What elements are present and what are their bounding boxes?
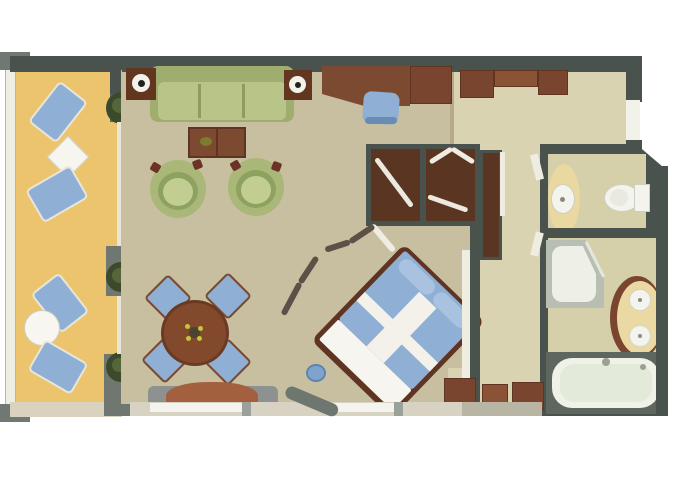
- hallway-cabinet-right: [538, 70, 568, 95]
- bottom-wall-right: [462, 402, 542, 416]
- wardrobe-door: [500, 152, 505, 216]
- ottoman-pouf: [306, 364, 326, 382]
- veranda-railing: [5, 62, 16, 416]
- tub-chair-1-cushion: [163, 178, 193, 206]
- sofa-cushion-divider-1: [198, 84, 201, 118]
- coffee-table-split: [216, 129, 218, 156]
- sofa-cushion-divider-2: [242, 84, 245, 118]
- bedroom-east-wall: [470, 222, 480, 404]
- tub-chair-2-cushion: [241, 176, 271, 204]
- desk-chair-back: [365, 117, 397, 124]
- window-pane-1: [150, 403, 242, 412]
- veranda-round-table: [24, 310, 60, 346]
- bathroom-east-wall: [656, 166, 668, 416]
- wc-toilet-tank: [634, 184, 650, 212]
- bath-divider-wall: [546, 228, 660, 238]
- vanity-sink-2-drain: [638, 334, 642, 338]
- window-pane-2: [330, 403, 394, 412]
- window-post-2: [394, 402, 403, 416]
- centerpiece-bud-1: [185, 324, 190, 329]
- speaker-right-center: [295, 82, 301, 88]
- wc-toilet-seat: [610, 189, 628, 206]
- suite-right-wall-upper: [626, 56, 642, 102]
- wc-sink-drain: [560, 197, 565, 202]
- coffee-table-deco: [200, 137, 212, 146]
- bathtub-drain: [640, 364, 646, 370]
- centerpiece-bud-4: [197, 336, 202, 341]
- bedroom-wall-face: [462, 250, 470, 382]
- floor-plan: [0, 0, 680, 486]
- veranda-top-wall: [10, 56, 122, 72]
- wardrobe-column: [480, 150, 502, 260]
- sofa-seat: [158, 82, 286, 120]
- speaker-left-center: [138, 80, 145, 87]
- hallway-cabinet-left: [460, 70, 494, 98]
- vanity-sink-1-drain: [638, 298, 642, 302]
- centerpiece-bud-2: [198, 326, 203, 331]
- hallway-counter: [494, 70, 538, 87]
- entry-door: [626, 100, 640, 142]
- window-post-1: [242, 402, 251, 416]
- desk-cabinet: [410, 66, 452, 104]
- centerpiece-bud-3: [186, 336, 191, 341]
- bathtub-faucet: [602, 358, 610, 366]
- closet-divider-wall: [420, 149, 426, 221]
- bathtub-basin: [560, 364, 652, 402]
